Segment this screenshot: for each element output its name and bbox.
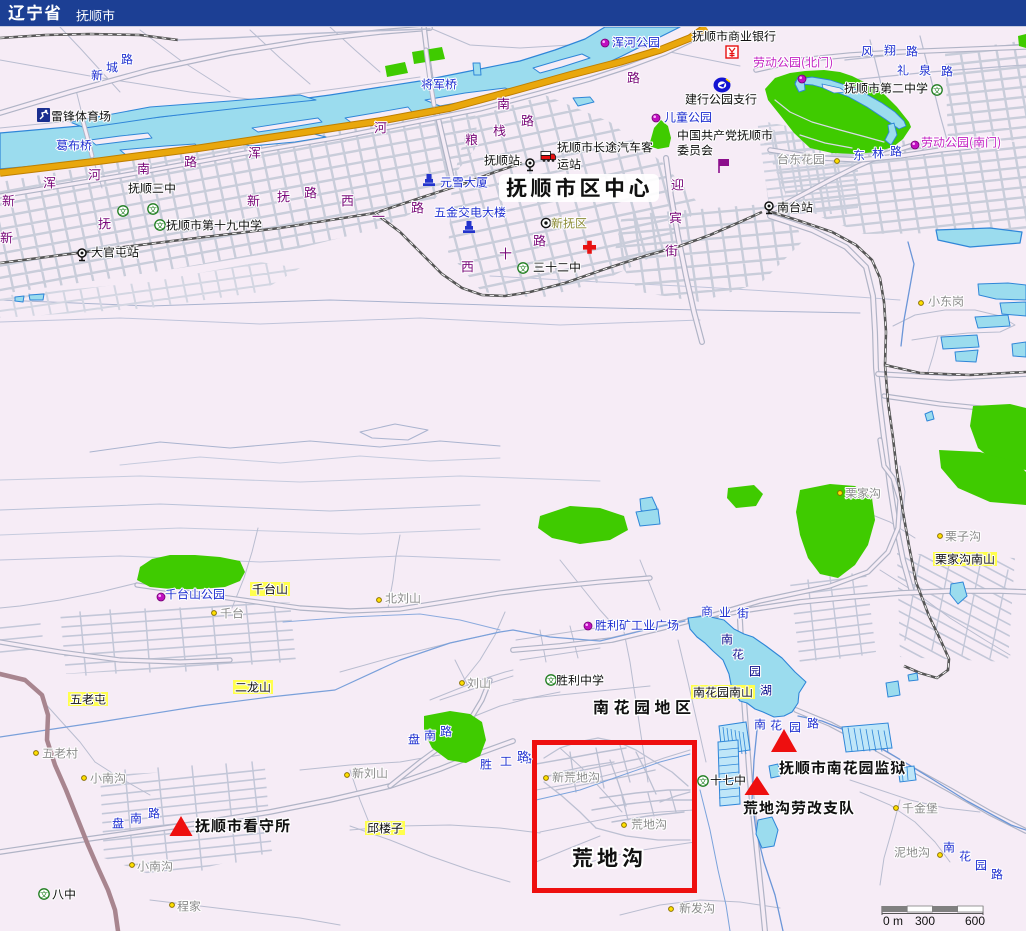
svg-text:600: 600 [965,914,985,928]
svg-text:300: 300 [915,914,935,928]
svg-text:0 m: 0 m [883,914,903,928]
